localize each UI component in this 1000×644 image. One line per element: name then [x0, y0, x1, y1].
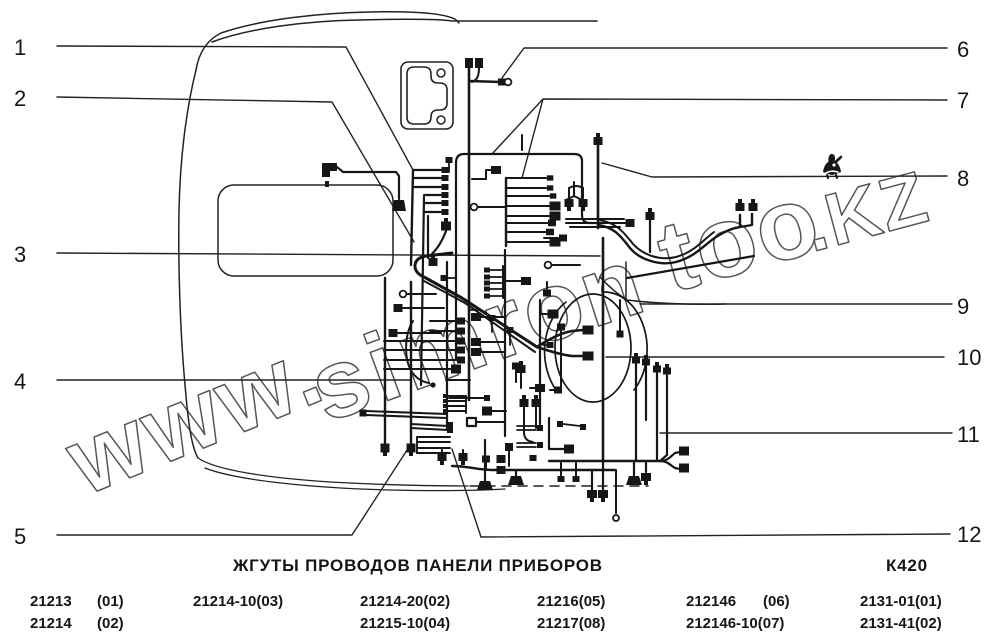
svg-text:21213: 21213: [30, 593, 72, 610]
svg-text:21216(05): 21216(05): [537, 593, 605, 610]
svg-text:21217(08): 21217(08): [537, 615, 605, 632]
svg-text:2131-01(01): 2131-01(01): [860, 593, 942, 610]
svg-text:ЖГУТЫ ПРОВОДОВ ПАНЕЛИ ПРИБОРОВ: ЖГУТЫ ПРОВОДОВ ПАНЕЛИ ПРИБОРОВ: [232, 556, 603, 575]
svg-text:(02): (02): [97, 615, 124, 632]
svg-text:12: 12: [957, 522, 981, 547]
svg-text:www.: www.: [51, 315, 339, 516]
svg-text:5: 5: [14, 524, 26, 549]
svg-text:21215-10(04): 21215-10(04): [360, 615, 450, 632]
svg-text:212146: 212146: [686, 593, 736, 610]
svg-text:(01): (01): [97, 593, 124, 610]
svg-text:2131-41(02): 2131-41(02): [860, 615, 942, 632]
svg-text:6: 6: [957, 37, 969, 62]
svg-text:1: 1: [14, 35, 26, 60]
svg-text:10: 10: [957, 345, 981, 370]
svg-text:21214: 21214: [30, 615, 72, 632]
svg-text:212146-10(07): 212146-10(07): [686, 615, 784, 632]
svg-text:simr: simr: [296, 263, 545, 442]
svg-text:9: 9: [957, 294, 969, 319]
svg-text:8: 8: [957, 166, 969, 191]
svg-text:7: 7: [957, 88, 969, 113]
svg-text:21214-10(03): 21214-10(03): [193, 593, 283, 610]
svg-text:2: 2: [14, 86, 26, 111]
svg-text:3: 3: [14, 242, 26, 267]
svg-text:11: 11: [957, 422, 980, 447]
svg-text:21214-20(02): 21214-20(02): [360, 593, 450, 610]
svg-text:(06): (06): [763, 593, 790, 610]
svg-text:4: 4: [14, 369, 26, 394]
svg-text:К420: К420: [886, 556, 928, 575]
svg-text:.KZ: .KZ: [795, 155, 937, 268]
